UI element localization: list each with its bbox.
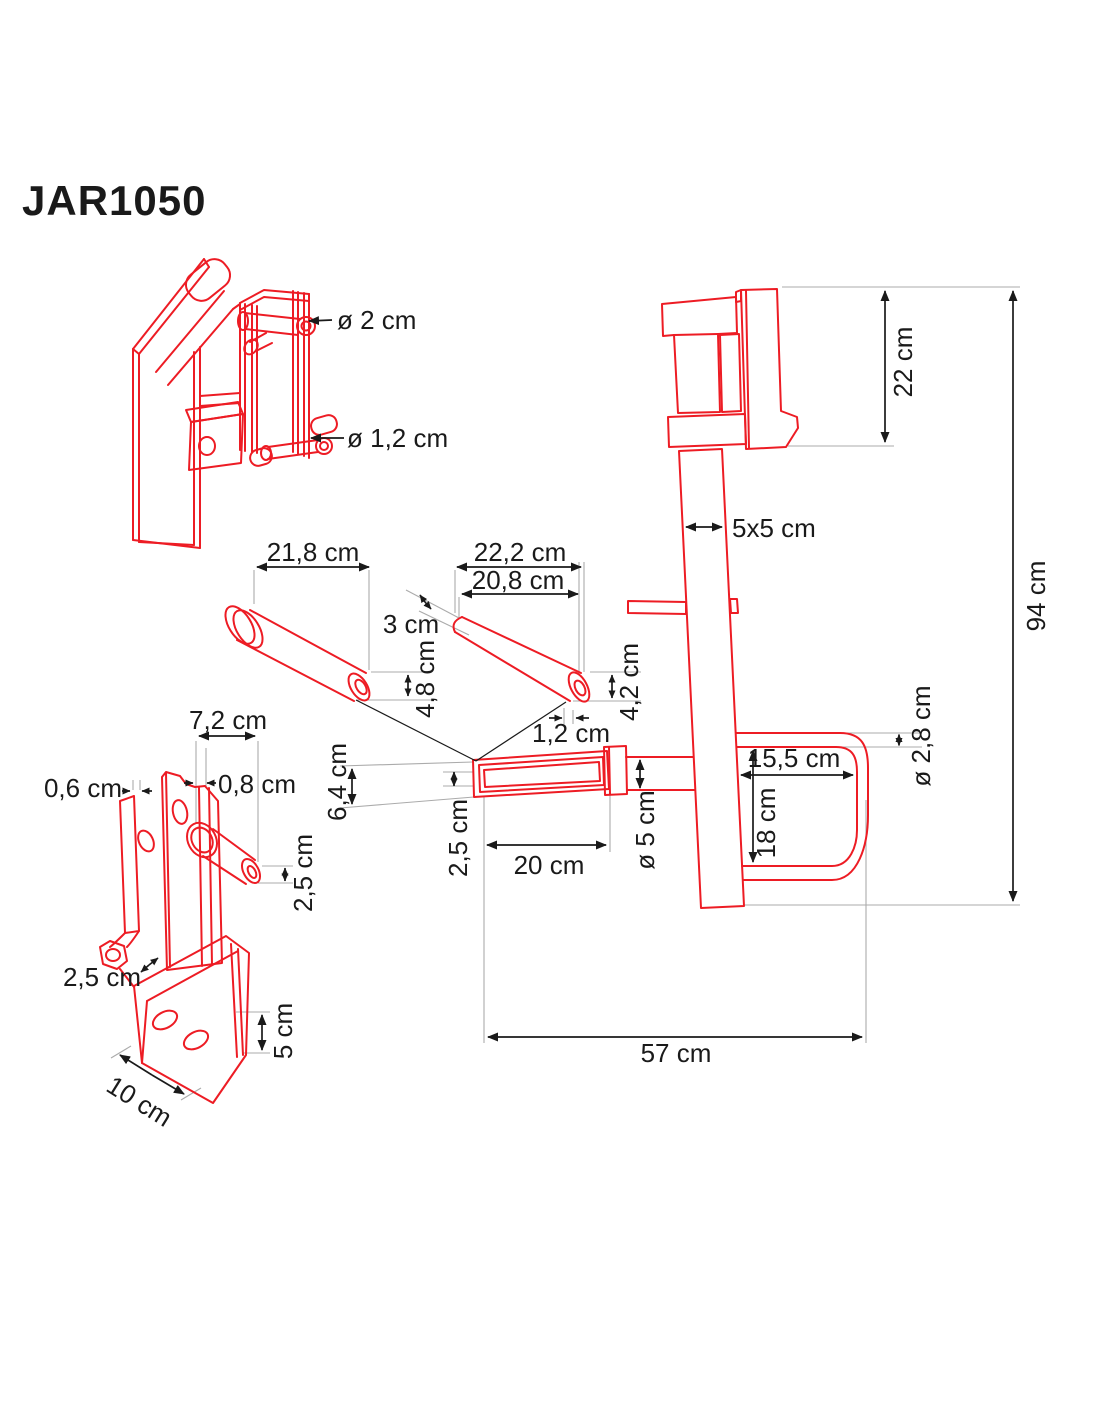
figure-sleeve — [473, 746, 695, 797]
dim-label-total-depth: 57 cm — [641, 1038, 712, 1068]
dim-label-pin-right-body-length: 20,8 cm — [472, 565, 565, 595]
dim-label-bar-diameter: ø 5 cm — [630, 790, 660, 869]
dim-label-total-height: 94 cm — [1021, 561, 1051, 632]
labels: JAR1050 ø 2 cm ø 1,2 cm 21,8 cm 4,8 cm 2… — [22, 177, 1051, 1133]
dim-label-head-height: 22 cm — [888, 327, 918, 398]
dim-label-hook-opening-height: 18 cm — [751, 788, 781, 859]
dim-label-hook-bar-diameter: ø 2,8 cm — [906, 685, 936, 786]
figure-pin-left — [220, 601, 374, 704]
technical-drawing: JAR1050 ø 2 cm ø 1,2 cm 21,8 cm 4,8 cm 2… — [0, 0, 1100, 1422]
dim-label-pin-small-diameter: ø 1,2 cm — [347, 423, 448, 453]
figure-pin-right — [454, 617, 594, 705]
dimension-lines — [120, 291, 1013, 1094]
page-title: JAR1050 — [22, 177, 206, 224]
dim-label-pin-right-tip: 3 cm — [383, 609, 439, 639]
dim-label-pin-right-end-diameter: 4,2 cm — [614, 643, 644, 721]
diagram-page: JAR1050 ø 2 cm ø 1,2 cm 21,8 cm 4,8 cm 2… — [0, 0, 1100, 1422]
figure-upright-bracket — [133, 254, 339, 548]
dim-label-pin-left-end-diameter: 4,8 cm — [410, 640, 440, 718]
dim-label-pin-right-total-length: 22,2 cm — [474, 537, 567, 567]
dim-label-hook-depth: 15,5 cm — [748, 743, 841, 773]
dim-label-bracket-pin-diameter: 2,5 cm — [288, 834, 318, 912]
figure-main-unit — [628, 289, 868, 908]
dim-label-sleeve-height: 6,4 cm — [322, 743, 352, 821]
dim-label-bracket-front-plate: 0,8 cm — [218, 769, 296, 799]
dim-label-bracket-top-width: 7,2 cm — [189, 705, 267, 735]
dim-label-bracket-hole-offset: 2,5 cm — [63, 962, 141, 992]
figure-side-bracket — [100, 772, 264, 1103]
dim-label-tube-section: 5x5 cm — [732, 513, 816, 543]
dim-label-bracket-base-height: 5 cm — [268, 1003, 298, 1059]
dim-label-bracket-back-plate: 0,6 cm — [44, 773, 122, 803]
dim-label-sleeve-wall: 2,5 cm — [443, 799, 473, 877]
dim-label-sleeve-length: 20 cm — [514, 850, 585, 880]
dim-label-pin-right-hole: 1,2 cm — [532, 718, 610, 748]
dim-label-pin-large-diameter: ø 2 cm — [337, 305, 416, 335]
dim-label-pin-left-length: 21,8 cm — [267, 537, 360, 567]
dim-label-bracket-base-length: 10 cm — [101, 1070, 177, 1133]
